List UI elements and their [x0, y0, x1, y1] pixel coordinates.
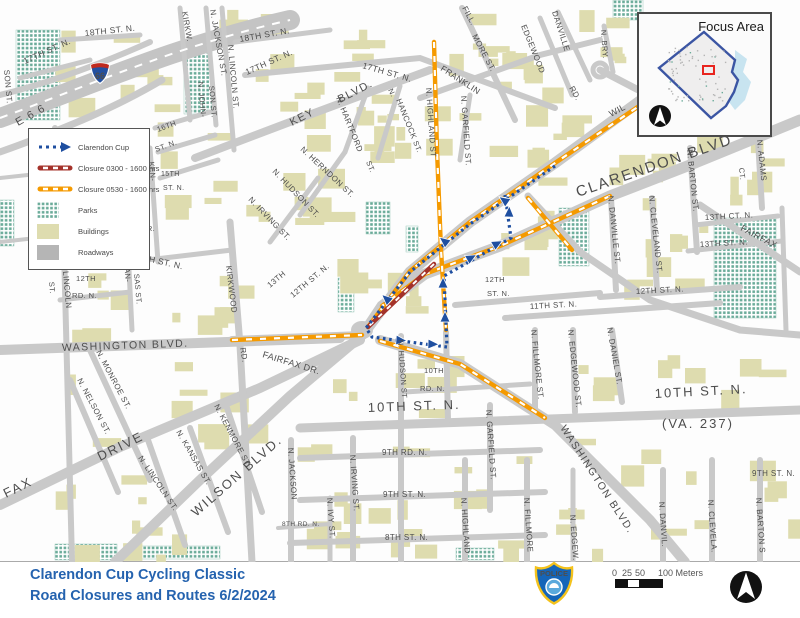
roadways-swatch [37, 245, 59, 260]
legend-item-parks: Parks [37, 200, 143, 220]
badge-police-text: POLICE [540, 569, 568, 578]
closure-0530-line-icon [37, 183, 73, 195]
street-label: ST. [47, 281, 57, 294]
street-label: CT. [737, 167, 747, 180]
legend-item-roadways: Roadways [37, 242, 143, 262]
scale-tick-25: 25 [622, 568, 632, 578]
street-label: 12TH [485, 275, 505, 284]
street-label: N. CLEVELA. [706, 500, 719, 553]
legend-label: Clarendon Cup [78, 143, 129, 152]
scale-bar: 0 25 50 100 Meters [612, 568, 742, 594]
police-badge: POLICE [534, 561, 574, 605]
legend-label: Parks [78, 206, 97, 215]
street-label: N. BARTON S [754, 498, 767, 554]
street-label: 13TH [266, 269, 288, 290]
legend-label: Closure 0300 - 1600 hrs [78, 164, 159, 173]
street-label: N. DANVILLE ST. [606, 195, 622, 264]
street-label: N. DANIEL ST. [605, 327, 624, 385]
legend-item-route: Clarendon Cup [37, 137, 143, 157]
street-label: N. EDGEW. [568, 515, 580, 561]
inset-title: Focus Area [698, 19, 764, 34]
street-label: (VA. 237) [662, 416, 734, 431]
street-label: RD. N. [420, 384, 445, 393]
county-outline [659, 32, 738, 118]
legend-item-closure-0300: Closure 0300 - 1600 hrs [37, 158, 143, 178]
buildings-swatch [37, 224, 59, 239]
closure-0300-line-icon [37, 162, 73, 174]
legend-item-buildings: Buildings [37, 221, 143, 241]
legend-label: Buildings [78, 227, 109, 236]
street-label: N. IRVING ST. [348, 455, 361, 512]
street-label: ST. N. [487, 289, 510, 298]
street-label: N. JACKSON [286, 448, 299, 501]
map-title-line2: Road Closures and Routes 6/2/2024 [30, 588, 276, 604]
street-label: 9TH ST. N. [752, 469, 795, 478]
legend: Clarendon Cup Closure 0300 - 1600 hrs Cl… [28, 128, 150, 270]
street-label: N. DANVIL. [657, 502, 669, 548]
street-label: 15TH [161, 171, 180, 178]
street-label: CLARENDON BLVD [574, 131, 735, 201]
inset-north-arrow-icon [649, 105, 671, 127]
legend-label: Closure 0530 - 1600 hrs [78, 185, 159, 194]
scale-end-label: 100 Meters [658, 568, 703, 578]
street-label: 12TH ST. N. [289, 262, 332, 300]
legend-item-closure-0530: Closure 0530 - 1600 hrs [37, 179, 143, 199]
street-label: 8TH ST. N. [385, 533, 428, 542]
route-line-icon [37, 141, 73, 153]
parks-swatch [37, 202, 73, 218]
street-label: 9TH ST. N. [383, 490, 426, 499]
focus-area-inset: Focus Area [637, 12, 772, 137]
street-label: ST. N. [163, 185, 184, 192]
page: 66 KIRKW.N. JACKSON ST.N. JOHN-SON ST.SO… [0, 0, 800, 618]
street-label: 10TH [424, 366, 444, 375]
street-label: N. FILLMORE ST. [529, 329, 545, 400]
street-label: 11TH ST. N. [530, 300, 578, 311]
street-label: SON ST. [2, 69, 14, 104]
street-label: 9TH RD. N. [382, 448, 427, 457]
legend-label: Roadways [78, 248, 113, 257]
street-label: 12TH [76, 274, 96, 283]
scale-bar-graphic [615, 579, 663, 588]
street-label: SAS ST. [132, 273, 144, 304]
scale-tick-50: 50 [635, 568, 645, 578]
street-label: ST. [411, 139, 424, 154]
street-label: RD. N. [72, 291, 97, 300]
map-title-line1: Clarendon Cup Cycling Classic [30, 567, 245, 583]
i66-shield-number: 66 [95, 71, 105, 81]
scale-tick-0: 0 [612, 568, 617, 578]
street-label: 8TH RD. N. [282, 521, 320, 528]
north-arrow-icon [728, 569, 764, 605]
